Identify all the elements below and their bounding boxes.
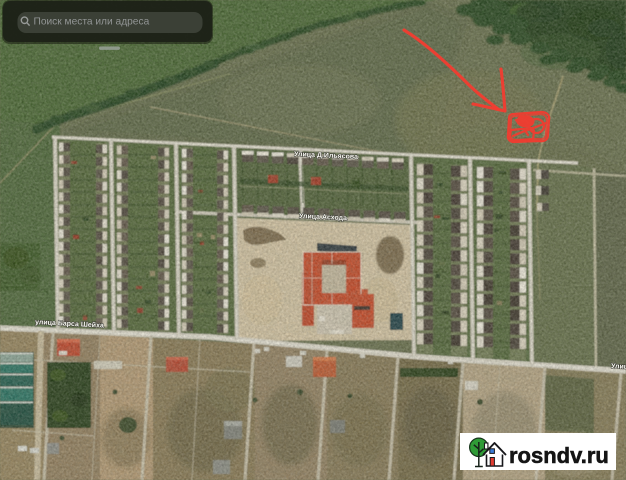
svg-text:Поиск места или адреса: Поиск места или адреса — [34, 17, 150, 28]
svg-text:Улиц: Улиц — [611, 363, 626, 371]
svg-text:rosndv.ru: rosndv.ru — [509, 443, 609, 468]
